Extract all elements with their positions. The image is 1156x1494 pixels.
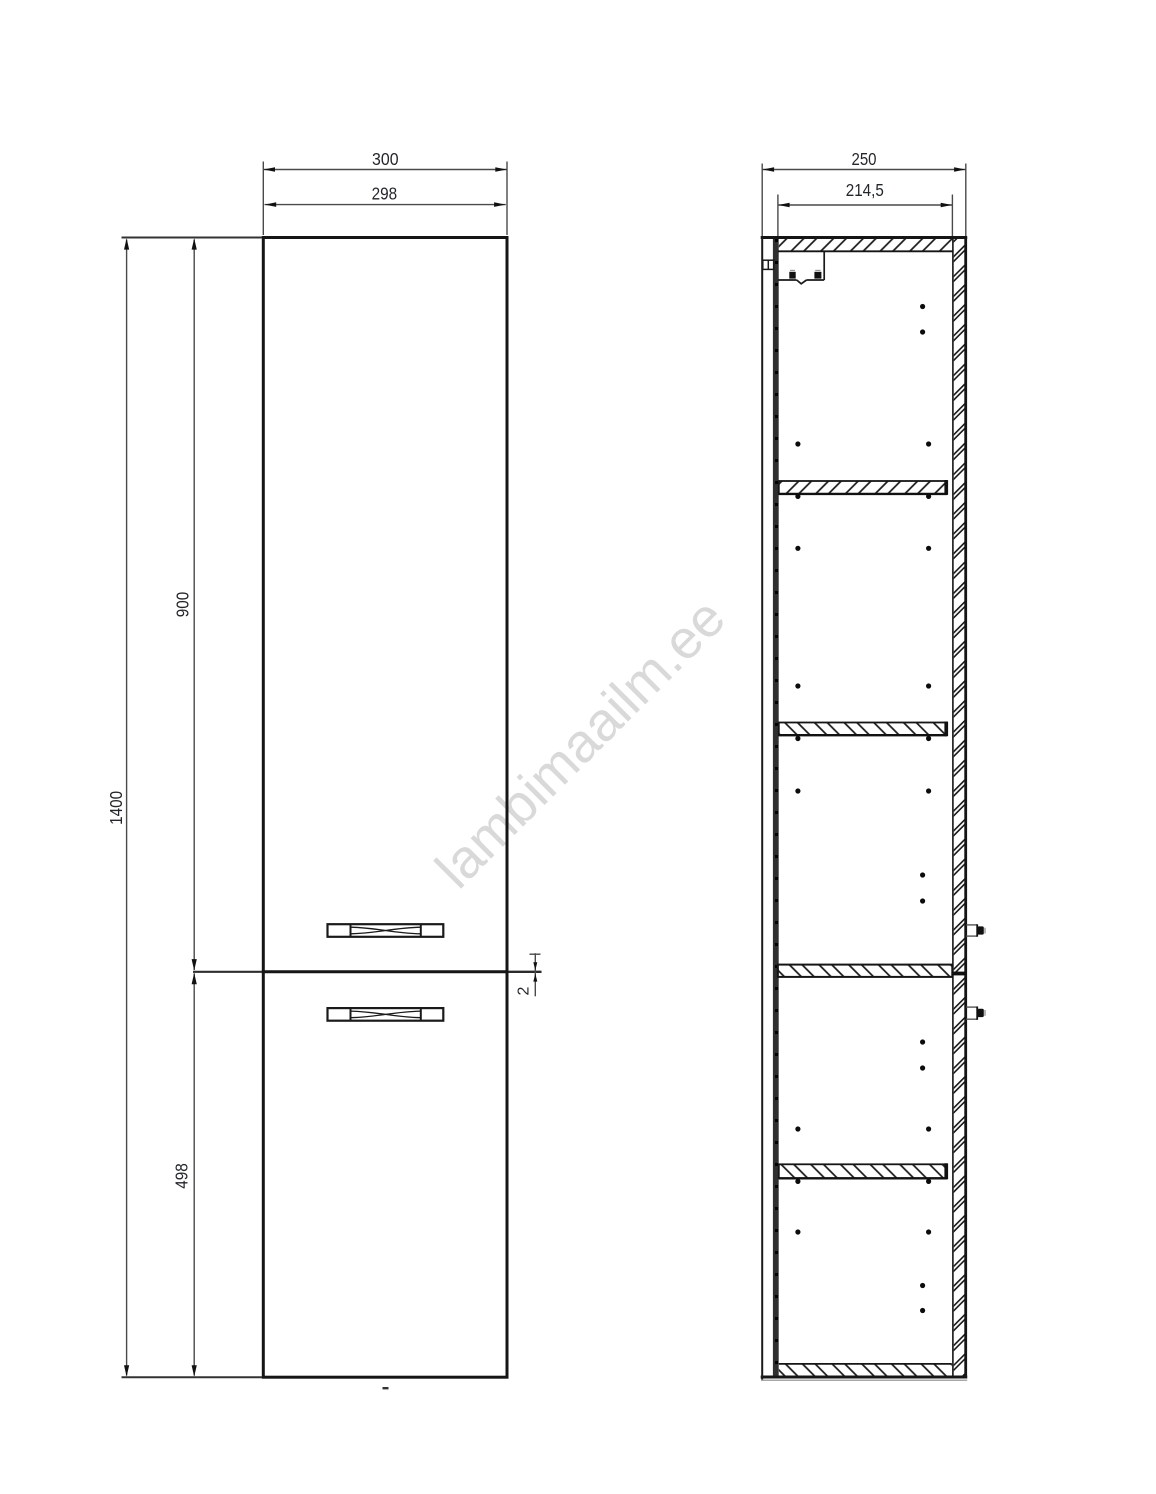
svg-text:498: 498 [171, 1163, 191, 1189]
svg-text:1400: 1400 [106, 791, 126, 825]
svg-text:lambimaailm.ee: lambimaailm.ee [424, 587, 737, 900]
svg-text:214,5: 214,5 [846, 180, 884, 200]
svg-text:300: 300 [372, 149, 399, 169]
svg-text:900: 900 [172, 592, 192, 618]
svg-text:250: 250 [852, 149, 877, 169]
svg-text:298: 298 [372, 184, 398, 204]
svg-text:2: 2 [516, 986, 533, 995]
